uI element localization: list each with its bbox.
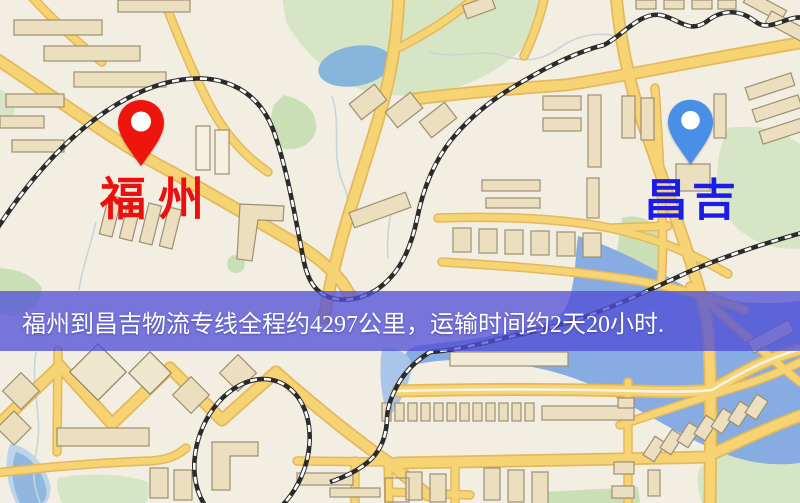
origin-pin-icon bbox=[117, 99, 165, 167]
destination-pin-icon bbox=[667, 98, 714, 166]
destination-label: 昌吉 bbox=[620, 179, 760, 223]
route-info-text: 福州到昌吉物流专线全程约4297公里，运输时间约2天20小时. bbox=[22, 304, 664, 339]
route-info-banner: 福州到昌吉物流专线全程约4297公里，运输时间约2天20小时. bbox=[0, 291, 800, 351]
origin-label: 福州 bbox=[82, 177, 222, 223]
map-screenshot: 福州 昌吉 福州到昌吉物流专线全程约4297公里，运输时间约2天20小时. bbox=[0, 0, 800, 503]
map-background bbox=[0, 0, 800, 503]
